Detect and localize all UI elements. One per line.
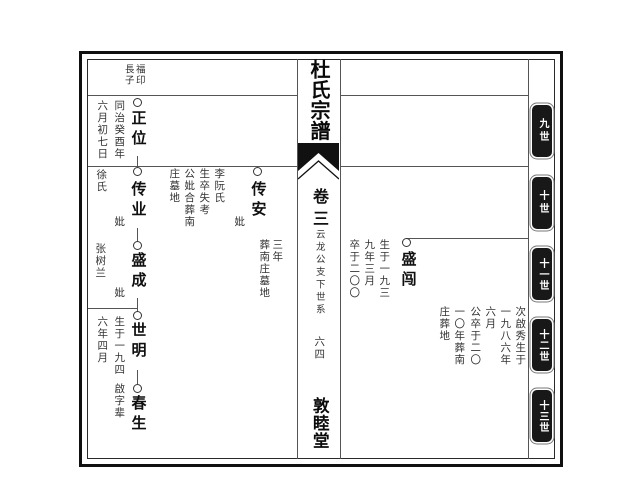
generation-column-rule	[528, 59, 529, 459]
chuanan-record-col-2: 生卒失考	[199, 168, 210, 216]
connector-chuanye-shengcheng	[137, 228, 138, 242]
person-name-chunsheng: 春生	[131, 395, 146, 435]
generation-tab-11: 十一世	[532, 248, 552, 300]
spine-rule-right	[340, 59, 341, 459]
shengchuang-record-col-3: 卒于二〇〇	[349, 239, 360, 299]
chuanan-record-col-4: 庄墓地	[169, 168, 180, 204]
generation-tab-9: 九世	[532, 105, 552, 157]
left-partial-rule	[88, 308, 138, 309]
person-name-shengchuang: 盛闯	[401, 251, 416, 291]
header-father-name: 福印	[134, 64, 144, 86]
volume-label: 卷三	[311, 188, 327, 232]
generation-tab-label: 十世	[537, 190, 547, 216]
generation-tab-13: 十三世	[532, 390, 552, 442]
generation-tab-label: 十一世	[537, 258, 547, 291]
series-note: 云龙公支下世系	[314, 229, 324, 317]
left-generation-rule	[88, 166, 297, 167]
person-name-chuanye: 传业	[131, 181, 146, 221]
person-marker-shiming	[133, 311, 142, 320]
connector-zhengwei-down	[137, 156, 138, 166]
generation-tab-label: 十三世	[537, 400, 547, 433]
connector-shengcheng-shiming	[137, 298, 138, 312]
generation-tab-label: 十二世	[537, 329, 547, 362]
genealogy-title: 杜氏宗譜	[309, 59, 329, 141]
page-number: 六四	[314, 336, 325, 361]
descendant-note-col-5: 一〇年葬南	[454, 306, 465, 366]
burial-note-col-1: 三年	[272, 239, 283, 263]
descendant-note-col-2: 一九八六年	[500, 306, 511, 366]
person-marker-zhengwei	[133, 98, 142, 107]
person-name-shengcheng: 盛成	[131, 252, 146, 292]
shengcheng-wife-name: 张树兰	[95, 243, 106, 279]
generation-tab-10: 十世	[532, 177, 552, 229]
generation-tab-12: 十二世	[532, 319, 552, 371]
burial-note-col-2: 葬南庄墓地	[259, 239, 270, 299]
descendant-note-col-3: 六月	[485, 306, 496, 330]
chuanye-wife-label: 妣	[114, 216, 125, 228]
hall-name: 敦睦堂	[311, 397, 328, 450]
connector-shengchuang-origin	[406, 238, 528, 239]
spine-rule-left	[297, 59, 298, 459]
header-relation-label: 長子	[123, 64, 133, 86]
chuanan-wife-label: 妣	[234, 216, 245, 228]
left-header-rule	[88, 95, 297, 96]
shengcheng-wife-label: 妣	[114, 287, 125, 299]
descendant-note-col-1: 次啟秀生于	[515, 306, 526, 366]
person-marker-chunsheng	[133, 384, 142, 393]
person-marker-chuanye	[133, 167, 142, 176]
person-name-zhengwei: 正位	[131, 110, 146, 150]
zhengwei-date-col-1: 同治癸酉年	[114, 100, 125, 160]
shengchuang-record-col-2: 九年三月	[364, 239, 375, 287]
descendant-note-col-6: 庄葬地	[439, 306, 450, 342]
shengchuang-record-col-1: 生于一九三	[379, 239, 390, 299]
connector-shiming-chunsheng	[137, 370, 138, 384]
shiming-birth-col-1: 生于一九四	[114, 316, 125, 376]
chunsheng-generation-note: 啟字辈	[114, 383, 125, 419]
person-marker-chuanan	[253, 167, 262, 176]
fishtail-mark	[298, 143, 339, 183]
person-marker-shengchuang	[402, 238, 411, 247]
shiming-birth-col-2: 六年四月	[97, 316, 108, 364]
person-name-shiming: 世明	[131, 322, 146, 362]
chuanan-record-col-1: 李阮氏	[214, 168, 225, 204]
person-name-chuanan: 传安	[251, 181, 266, 221]
chuanan-record-col-3: 公妣合葬南	[184, 168, 195, 228]
descendant-note-col-4: 公卒于二〇	[470, 306, 481, 366]
generation-tab-label: 九世	[537, 118, 547, 144]
zhengwei-date-col-2: 六月初七日	[97, 100, 108, 160]
right-header-rule	[341, 95, 528, 96]
chuanye-wife-surname: 徐氏	[96, 169, 107, 193]
right-generation-rule	[341, 166, 528, 167]
person-marker-shengcheng	[133, 241, 142, 250]
